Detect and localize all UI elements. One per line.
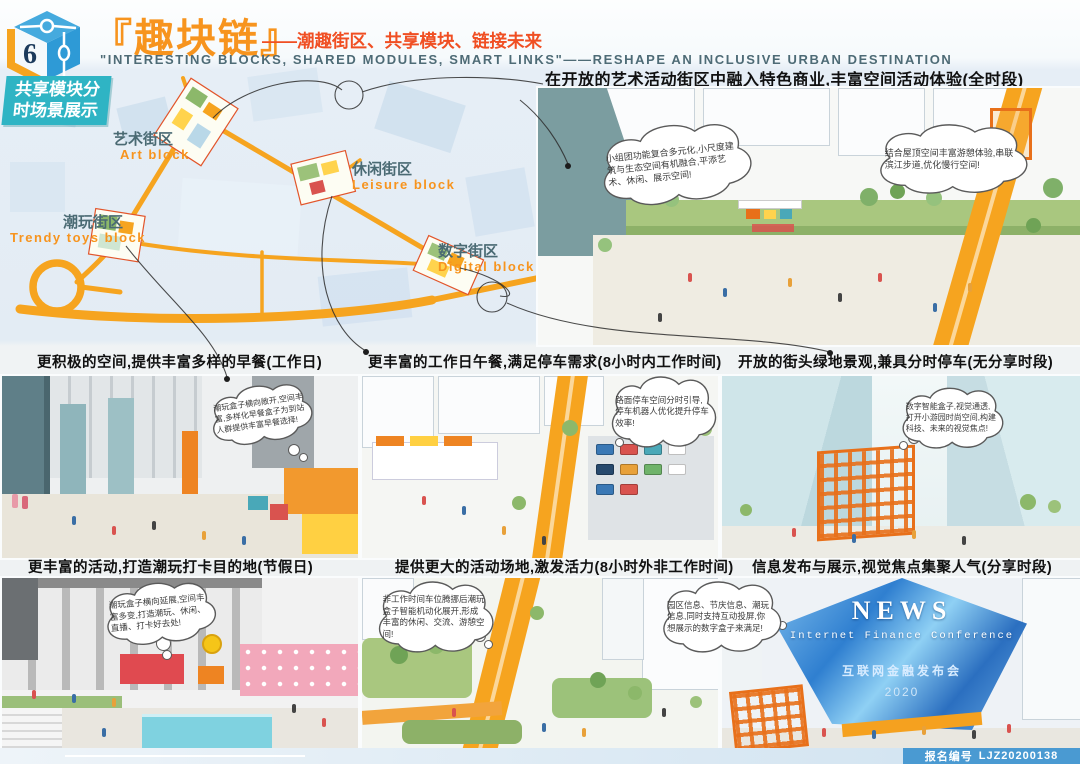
car bbox=[620, 484, 638, 495]
bubble-tail-dot bbox=[162, 650, 172, 660]
person bbox=[112, 698, 116, 707]
bubble-tail-dot bbox=[299, 453, 308, 462]
car bbox=[668, 464, 686, 475]
news-subtitle: Internet Finance Conference bbox=[777, 630, 1027, 642]
person bbox=[968, 283, 972, 292]
person bbox=[422, 496, 426, 505]
poster-page: 6 『趣块链』 ——潮趣街区、共享模块、链接未来 "INTERESTING BL… bbox=[0, 0, 1080, 764]
person bbox=[788, 278, 792, 287]
person bbox=[202, 531, 206, 540]
tree bbox=[740, 504, 752, 516]
mid3-bubble: 数字智能盒子,视觉通透,打开小游园时尚空间,构建科技、未来的视觉焦点! bbox=[893, 384, 1009, 454]
lawn-edge bbox=[626, 226, 1080, 235]
person bbox=[502, 526, 506, 535]
pool bbox=[142, 714, 272, 748]
bot1-bubble-text: 潮玩盒子横向延展,空间丰富多变,打造潮玩、休闲、直播、打卡好去处! bbox=[108, 586, 210, 641]
bot2-bubble: 非工作时间车位腾挪后潮玩盒子智能机动化展开,形成丰富的休闲、交流、游憩空间! bbox=[368, 577, 500, 659]
tree bbox=[1020, 494, 1036, 510]
bot1-bubble: 潮玩盒子横向延展,空间丰富多变,打造潮玩、休闲、直播、打卡好去处! bbox=[93, 574, 225, 655]
person bbox=[922, 726, 926, 735]
news-crystal-display: NEWS Internet Finance Conference 互联网金融发布… bbox=[777, 578, 1027, 730]
red-banner-box bbox=[120, 654, 184, 684]
person bbox=[792, 528, 796, 537]
bot3-bubble: 园区信息、节庆信息、潮玩信息,同时支持互动投屏,你想展示的数字盒子来满足! bbox=[652, 577, 788, 659]
mid2-bubble-text: 路面停车空间分时引导,停车机器人优化提升停车效率! bbox=[615, 385, 709, 439]
person bbox=[72, 694, 76, 703]
report-number-badge: 报名编号 LJZ20200138 bbox=[903, 748, 1080, 764]
map-label-digital-cn: 数字街区 bbox=[438, 240, 498, 261]
yellow-box bbox=[302, 514, 358, 554]
poster-title-suffix: ——潮趣街区、共享模块、链接未来 bbox=[262, 28, 542, 53]
building bbox=[602, 578, 644, 660]
bot2-caption: 提供更大的活动场地,激发活力(8小时外非工作时间) bbox=[395, 556, 734, 577]
person bbox=[452, 708, 456, 717]
tree bbox=[598, 238, 612, 252]
storefront bbox=[372, 442, 498, 480]
hero-bubble-left: 小组团功能复合多元化,小尺度建筑与生态空间有机融合,平添艺术、休闲、展示空间! bbox=[584, 111, 764, 218]
person bbox=[933, 303, 937, 312]
person bbox=[32, 690, 36, 699]
tree bbox=[1043, 178, 1063, 198]
mid2-caption: 更丰富的工作日午餐,满足停车需求(8小时内工作时间) bbox=[368, 351, 722, 372]
person bbox=[542, 536, 546, 545]
stall bbox=[764, 210, 776, 219]
person bbox=[292, 704, 296, 713]
person bbox=[72, 516, 76, 525]
car bbox=[644, 464, 662, 475]
person bbox=[102, 728, 106, 737]
car bbox=[596, 464, 614, 475]
news-title: NEWS bbox=[777, 596, 1027, 626]
person bbox=[962, 536, 966, 545]
person bbox=[838, 293, 842, 302]
person bbox=[662, 708, 666, 717]
tree bbox=[512, 496, 526, 510]
bot3-caption: 信息发布与展示,视觉焦点集聚人气(分享时段) bbox=[752, 556, 1052, 577]
lawn bbox=[402, 720, 522, 744]
stall bbox=[746, 209, 760, 219]
orange-box bbox=[284, 468, 358, 514]
tree bbox=[1026, 218, 1041, 233]
person bbox=[852, 534, 856, 543]
news-cn-title: 互联网金融发布会 bbox=[777, 662, 1027, 679]
person bbox=[822, 728, 826, 737]
dark-corner bbox=[2, 578, 38, 660]
section-badge-line2: 时场景展示 bbox=[12, 100, 99, 121]
hero-bubble-right-text: 结合屋顶空间丰富游憩体验,串联滨江步道,优化慢行空间! bbox=[885, 133, 1018, 186]
mid1-caption: 更积极的空间,提供丰富多样的早餐(工作日) bbox=[37, 351, 322, 372]
person bbox=[12, 494, 18, 508]
person bbox=[112, 526, 116, 535]
person bbox=[582, 728, 586, 737]
glass-column bbox=[60, 404, 86, 500]
orange-lattice-sculpture bbox=[817, 445, 915, 542]
stall bbox=[780, 209, 792, 219]
bubble-tail-dot bbox=[288, 444, 300, 456]
tree bbox=[562, 420, 578, 436]
awning bbox=[376, 436, 404, 446]
hero-bubble-right: 结合屋顶空间丰富游憩体验,串联滨江步道,优化慢行空间! bbox=[866, 120, 1036, 200]
plaza bbox=[593, 235, 1080, 345]
awning bbox=[410, 436, 438, 446]
map-label-trendy-cn: 潮玩街区 bbox=[63, 211, 123, 232]
car bbox=[596, 484, 614, 495]
stall bbox=[752, 224, 794, 232]
car bbox=[620, 464, 638, 475]
person bbox=[1007, 724, 1011, 733]
tree bbox=[690, 696, 702, 708]
pink-wall bbox=[240, 644, 358, 696]
person bbox=[658, 313, 662, 322]
bot3-bubble-text: 园区信息、节庆信息、潮玩信息,同时支持互动投屏,你想展示的数字盒子来满足! bbox=[667, 590, 773, 644]
orange-lattice-box bbox=[729, 684, 809, 748]
stairs bbox=[2, 708, 62, 748]
tree bbox=[628, 686, 642, 700]
person bbox=[723, 288, 727, 297]
mid2-bubble: 路面停车空间分时引导,停车机器人优化提升停车效率! bbox=[602, 372, 722, 454]
person bbox=[878, 273, 882, 282]
map-label-digital-en: Digital block bbox=[438, 259, 535, 274]
building bbox=[438, 376, 540, 434]
person bbox=[688, 273, 692, 282]
person bbox=[22, 496, 28, 509]
map-label-art-cn: 艺术街区 bbox=[113, 128, 173, 149]
mid3-bubble-text: 数字智能盒子,视觉通透,打开小游园时尚空间,构建科技、未来的视觉焦点! bbox=[906, 395, 996, 441]
person bbox=[152, 521, 156, 530]
person bbox=[542, 723, 546, 732]
mid3-caption: 开放的街头绿地景观,兼具分时停车(无分享时段) bbox=[738, 351, 1053, 372]
tree bbox=[590, 672, 606, 688]
building bbox=[1022, 578, 1080, 720]
teal-box bbox=[248, 496, 268, 510]
hero-caption: 在开放的艺术活动街区中融入特色商业,丰富空间活动体验(全时段) bbox=[545, 66, 1024, 90]
bot1-caption: 更丰富的活动,打造潮玩打卡目的地(节假日) bbox=[28, 556, 313, 577]
tree bbox=[530, 606, 544, 620]
bot2-bubble-text: 非工作时间车位腾挪后潮玩盒子智能机动化展开,形成丰富的休闲、交流、游憩空间! bbox=[383, 590, 486, 644]
map-label-art-en: Art block bbox=[120, 147, 190, 162]
report-number-label: 报名编号 bbox=[925, 748, 973, 764]
red-box bbox=[270, 504, 288, 520]
awning bbox=[444, 436, 472, 446]
hedge bbox=[2, 696, 122, 708]
orange-box bbox=[198, 666, 224, 684]
section-badge-line1: 共享模块分 bbox=[14, 79, 101, 100]
map-label-leisure-cn: 休闲街区 bbox=[352, 158, 412, 179]
footer-line bbox=[65, 755, 305, 757]
person bbox=[242, 536, 246, 545]
person bbox=[912, 530, 916, 539]
map-label-trendy-en: Trendy toys block bbox=[10, 230, 146, 245]
news-year: 2020 bbox=[777, 685, 1027, 699]
report-number-value: LJZ20200138 bbox=[979, 750, 1059, 762]
glass-column bbox=[108, 398, 134, 498]
person bbox=[322, 718, 326, 727]
person bbox=[972, 730, 976, 739]
person bbox=[462, 506, 466, 515]
map-label-leisure-en: Leisure block bbox=[352, 177, 455, 192]
tree bbox=[1048, 500, 1061, 513]
person bbox=[872, 730, 876, 739]
section-badge: 共享模块分 时场景展示 bbox=[1, 76, 111, 125]
